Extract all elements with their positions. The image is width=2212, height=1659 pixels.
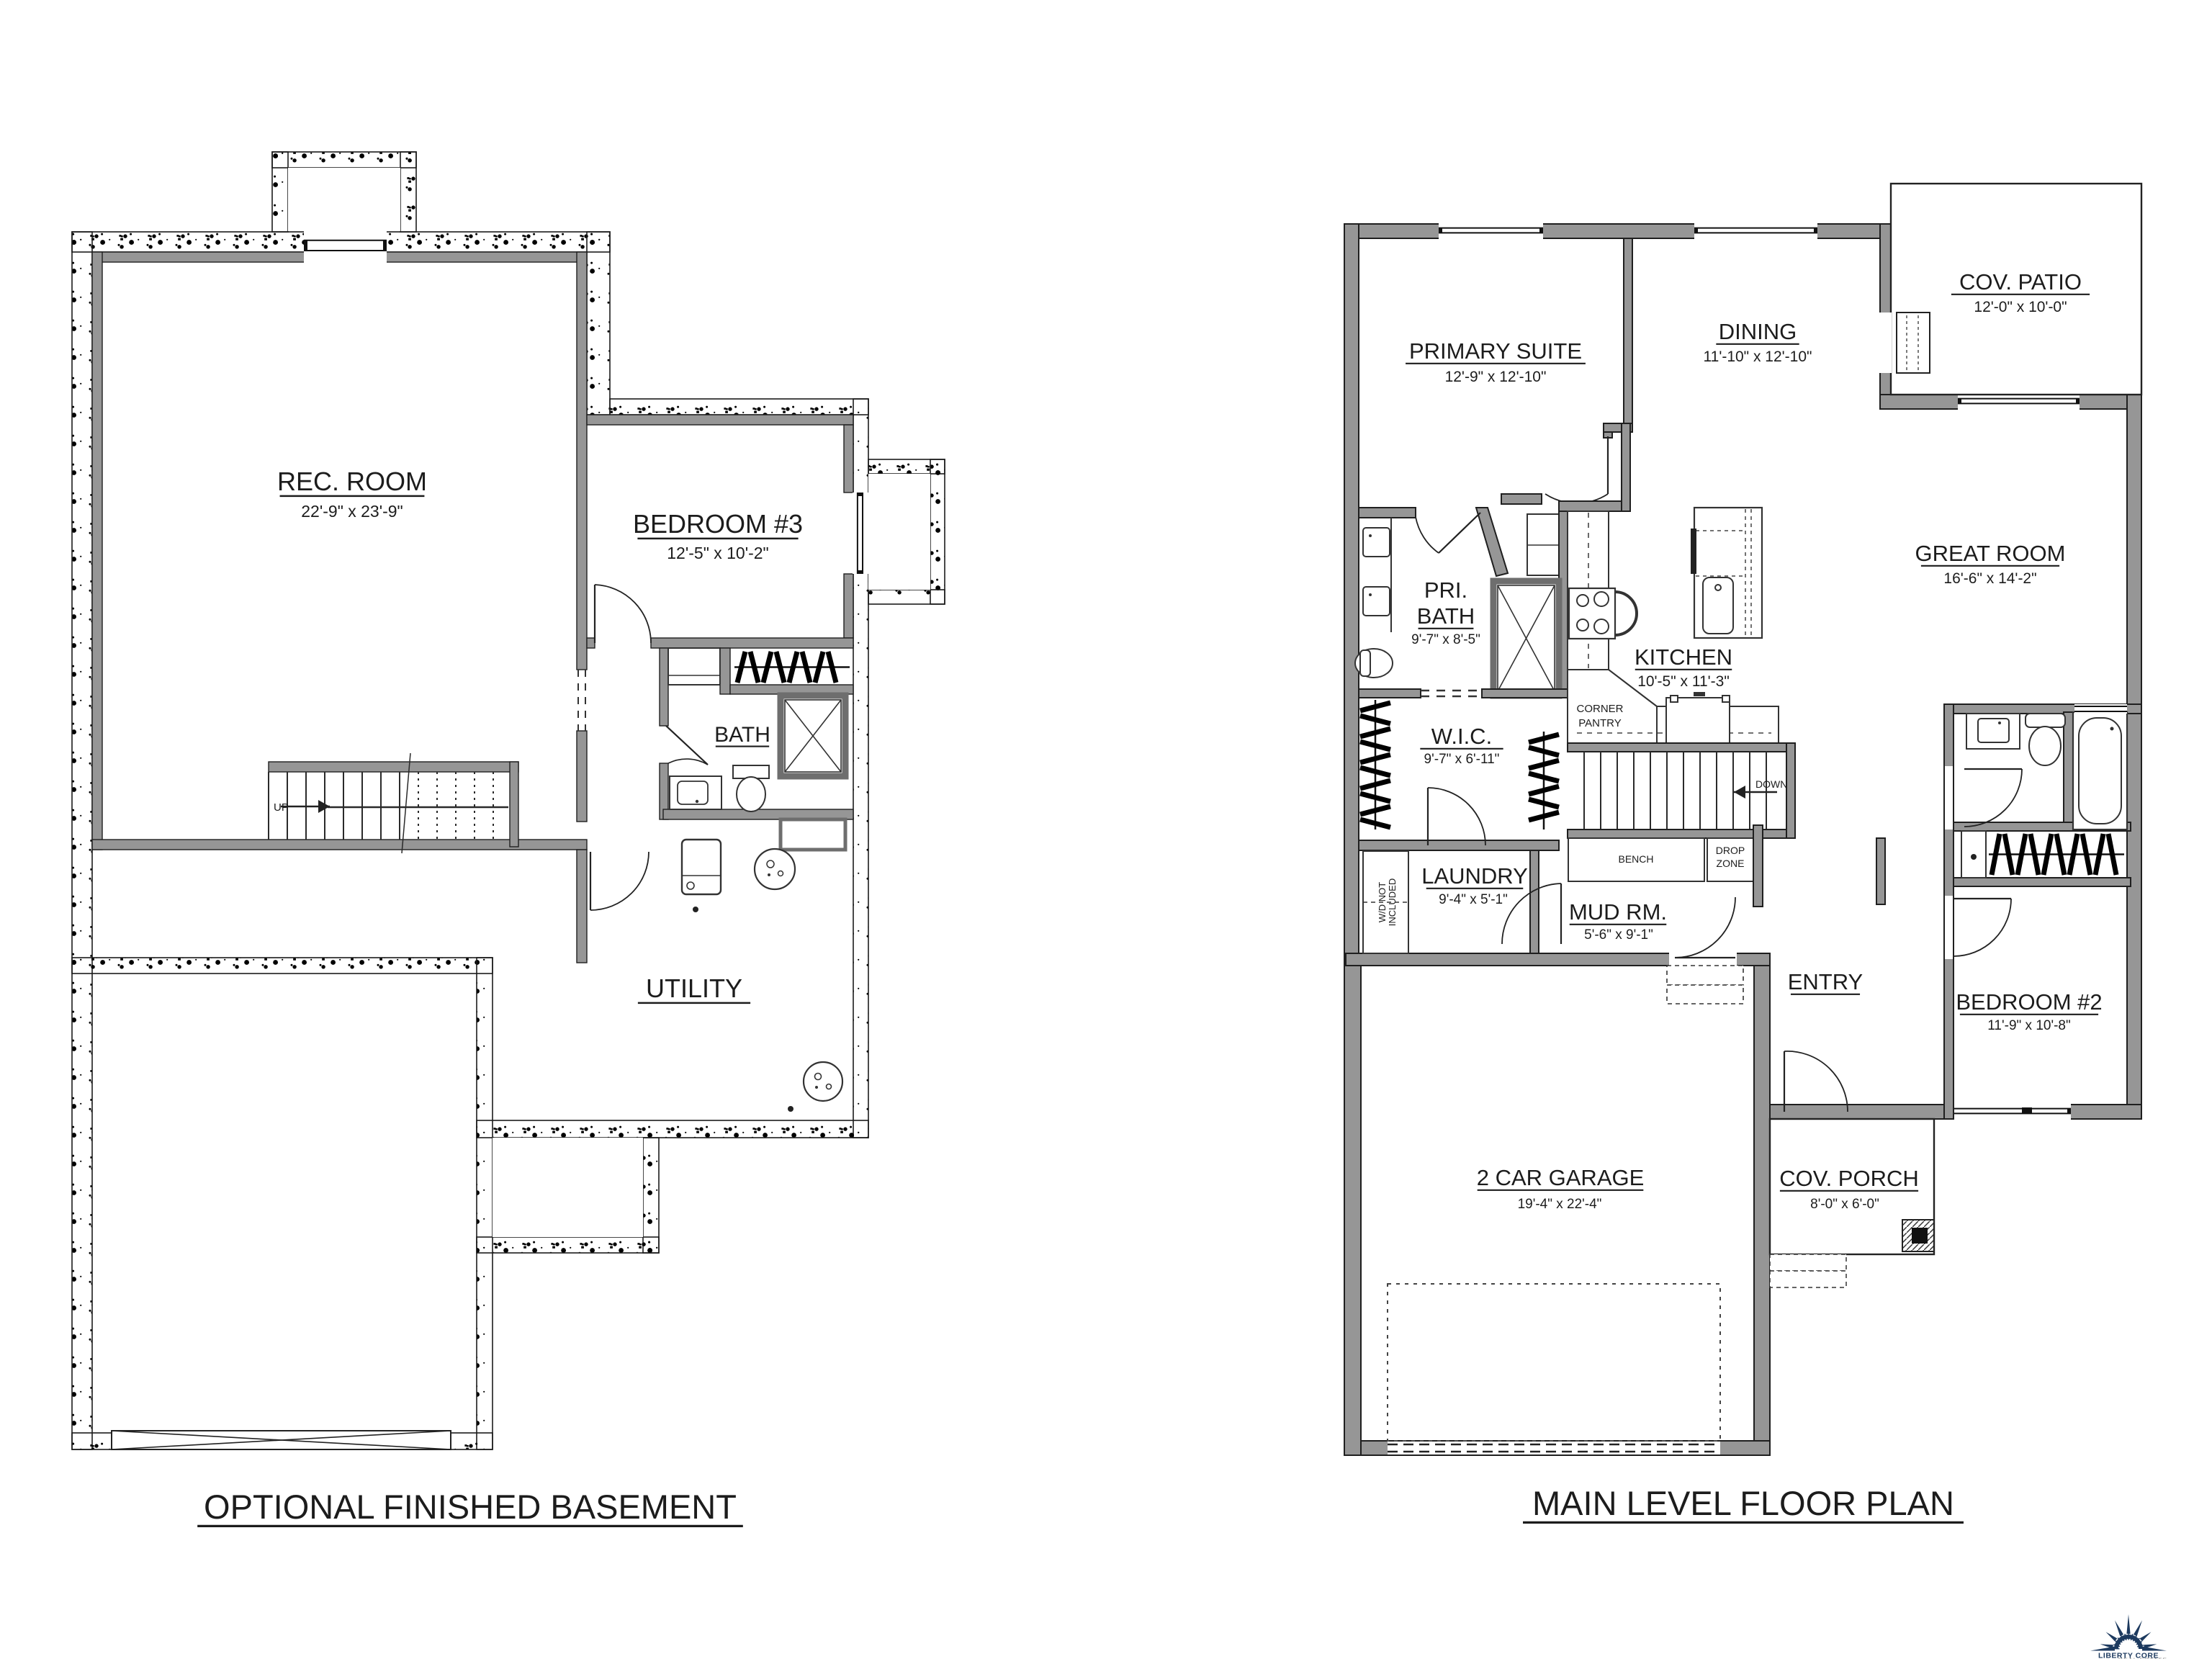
svg-text:COV. PATIO: COV. PATIO (1959, 269, 2082, 295)
svg-text:DINING: DINING (1719, 319, 1797, 344)
svg-text:MUD RM.: MUD RM. (1569, 899, 1667, 925)
svg-text:5'-6" x 9'-1": 5'-6" x 9'-1" (1584, 927, 1653, 943)
svg-text:MAIN LEVEL FLOOR PLAN: MAIN LEVEL FLOOR PLAN (1532, 1484, 1954, 1522)
svg-text:8'-0" x 6'-0": 8'-0" x 6'-0" (1810, 1197, 1879, 1212)
svg-text:LAUNDRY: LAUNDRY (1421, 863, 1528, 889)
svg-text:BEDROOM #3: BEDROOM #3 (633, 509, 803, 539)
svg-text:11'-10" x 12'-10": 11'-10" x 12'-10" (1704, 349, 1812, 365)
svg-text:REC. ROOM: REC. ROOM (277, 467, 427, 496)
svg-text:9'-4" x 5'-1": 9'-4" x 5'-1" (1439, 892, 1508, 907)
svg-text:BEDROOM #2: BEDROOM #2 (1956, 989, 2102, 1015)
svg-text:19'-4" x 22'-4": 19'-4" x 22'-4" (1518, 1197, 1602, 1212)
svg-text:12'-5" x 10'-2": 12'-5" x 10'-2" (667, 544, 768, 562)
svg-text:W.I.C.: W.I.C. (1431, 724, 1492, 749)
svg-text:W/D NOT: W/D NOT (1377, 882, 1388, 922)
svg-text:COV. PORCH: COV. PORCH (1779, 1166, 1919, 1191)
svg-text:BENCH: BENCH (1618, 853, 1653, 865)
svg-text:UP: UP (274, 801, 289, 814)
svg-text:2 CAR GARAGE: 2 CAR GARAGE (1477, 1165, 1645, 1190)
svg-text:UTILITY: UTILITY (646, 974, 742, 1003)
svg-text:16'-6" x 14'-2": 16'-6" x 14'-2" (1943, 570, 2036, 587)
svg-text:INCLUDED: INCLUDED (1387, 878, 1398, 926)
svg-text:PANTRY: PANTRY (1578, 717, 1621, 729)
svg-text:9'-7" x 8'-5": 9'-7" x 8'-5" (1411, 632, 1480, 647)
svg-text:ZONE: ZONE (1717, 858, 1745, 869)
svg-text:DOWN: DOWN (1755, 778, 1787, 790)
svg-text:GREAT ROOM: GREAT ROOM (1915, 541, 2066, 566)
svg-text:BATH: BATH (714, 723, 770, 747)
svg-text:9'-7" x 6'-11": 9'-7" x 6'-11" (1424, 752, 1500, 767)
svg-text:REAL ESTATE: REAL ESTATE (2118, 1657, 2167, 1659)
svg-text:12'-9" x 12'-10": 12'-9" x 12'-10" (1445, 369, 1547, 385)
svg-text:DROP: DROP (1716, 845, 1745, 856)
svg-text:ENTRY: ENTRY (1788, 969, 1863, 994)
svg-text:PRIMARY SUITE: PRIMARY SUITE (1409, 338, 1582, 364)
svg-text:12'-0" x 10'-0": 12'-0" x 10'-0" (1974, 299, 2067, 315)
svg-text:OPTIONAL FINISHED BASEMENT: OPTIONAL FINISHED BASEMENT (204, 1488, 737, 1526)
svg-text:CORNER: CORNER (1576, 703, 1623, 715)
svg-text:11'-9" x 10'-8": 11'-9" x 10'-8" (1987, 1018, 2070, 1033)
svg-text:10'-5" x 11'-3": 10'-5" x 11'-3" (1637, 673, 1730, 690)
svg-text:22'-9" x 23'-9": 22'-9" x 23'-9" (301, 502, 403, 521)
svg-text:BATH: BATH (1417, 603, 1475, 629)
svg-text:PRI.: PRI. (1424, 577, 1467, 603)
svg-text:KITCHEN: KITCHEN (1635, 644, 1732, 670)
